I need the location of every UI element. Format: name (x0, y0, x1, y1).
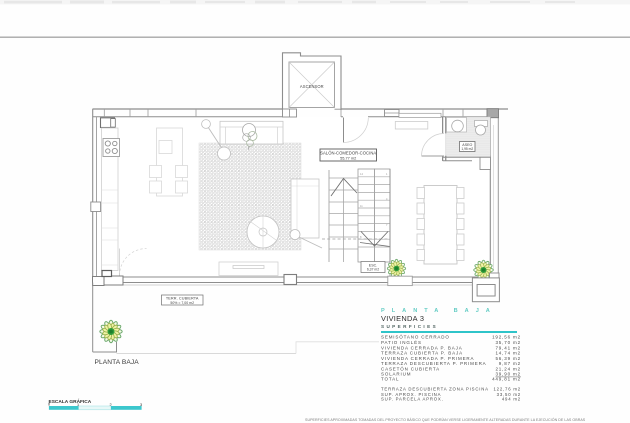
svg-text:ESC.: ESC. (369, 263, 377, 267)
svg-text:VIVIENDA 3: VIVIENDA 3 (381, 314, 424, 323)
svg-text:VIVIENDA CERRADA P. PRIMERA: VIVIENDA CERRADA P. PRIMERA (381, 356, 474, 361)
svg-text:PLANTA BAJA: PLANTA BAJA (95, 359, 140, 366)
svg-text:PATIO INGLÉS: PATIO INGLÉS (381, 339, 422, 345)
svg-text:SUPERFICIES: SUPERFICIES (381, 324, 438, 329)
svg-text:SUP. PARCELA APROX.: SUP. PARCELA APROX. (381, 397, 444, 402)
svg-text:50% = 7,00 m2: 50% = 7,00 m2 (170, 301, 194, 305)
svg-text:449,81 m2: 449,81 m2 (492, 377, 521, 382)
svg-text:9,87 m2: 9,87 m2 (499, 361, 521, 366)
svg-text:TOTAL: TOTAL (381, 377, 399, 382)
svg-text:56,39 m2: 56,39 m2 (495, 356, 521, 361)
svg-text:1,95 m2: 1,95 m2 (461, 147, 473, 151)
svg-text:SUPERFICIES APROXIMADAS TOMADA: SUPERFICIES APROXIMADAS TOMADAS DEL PROY… (305, 417, 586, 422)
svg-text:6,37 m2: 6,37 m2 (367, 268, 379, 272)
svg-text:TERRAZA DESCUBIERTA P. PRIMERA: TERRAZA DESCUBIERTA P. PRIMERA (381, 361, 487, 366)
svg-text:ASCENSOR: ASCENSOR (300, 84, 324, 89)
svg-text:494 m2: 494 m2 (502, 397, 521, 402)
svg-text:55,77 m2: 55,77 m2 (340, 155, 356, 160)
svg-text:CASETÓN CUBIERTA: CASETÓN CUBIERTA (381, 365, 440, 371)
svg-text:SEMISÓTANO CERRADO: SEMISÓTANO CERRADO (381, 334, 450, 340)
svg-text:ESCALA GRÁFICA: ESCALA GRÁFICA (49, 398, 92, 405)
svg-text:14,74 m2: 14,74 m2 (495, 351, 521, 356)
svg-text:TERRAZA CUBIERTA P. BAJA: TERRAZA CUBIERTA P. BAJA (381, 351, 463, 356)
svg-text:21,24 m2: 21,24 m2 (495, 366, 521, 371)
svg-text:192,56 m2: 192,56 m2 (492, 335, 521, 340)
